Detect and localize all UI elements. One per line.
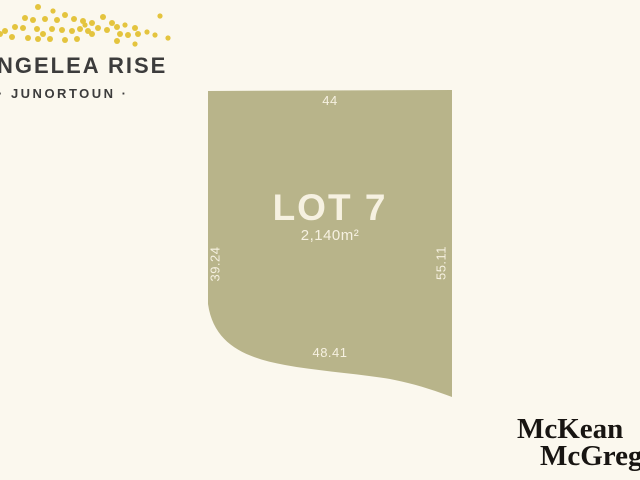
agency-name-line2: McGregor: [540, 443, 640, 470]
lot-dimension-left: 39.24: [208, 246, 223, 281]
lot-dimension-bottom: 48.41: [208, 345, 452, 360]
lot-area: 2,140m²: [208, 227, 452, 244]
lot-dimension-right: 55.11: [434, 246, 449, 280]
lot-title: LOT 7: [208, 187, 452, 229]
lot-dimension-top: 44: [208, 93, 452, 108]
agency-logo: McKean McGregor: [517, 416, 640, 470]
flyer-canvas: NGELEA RISE · JUNORTOUN · 44 LOT 7 2,140…: [0, 0, 640, 480]
agency-name-line1: McKean: [517, 416, 640, 443]
